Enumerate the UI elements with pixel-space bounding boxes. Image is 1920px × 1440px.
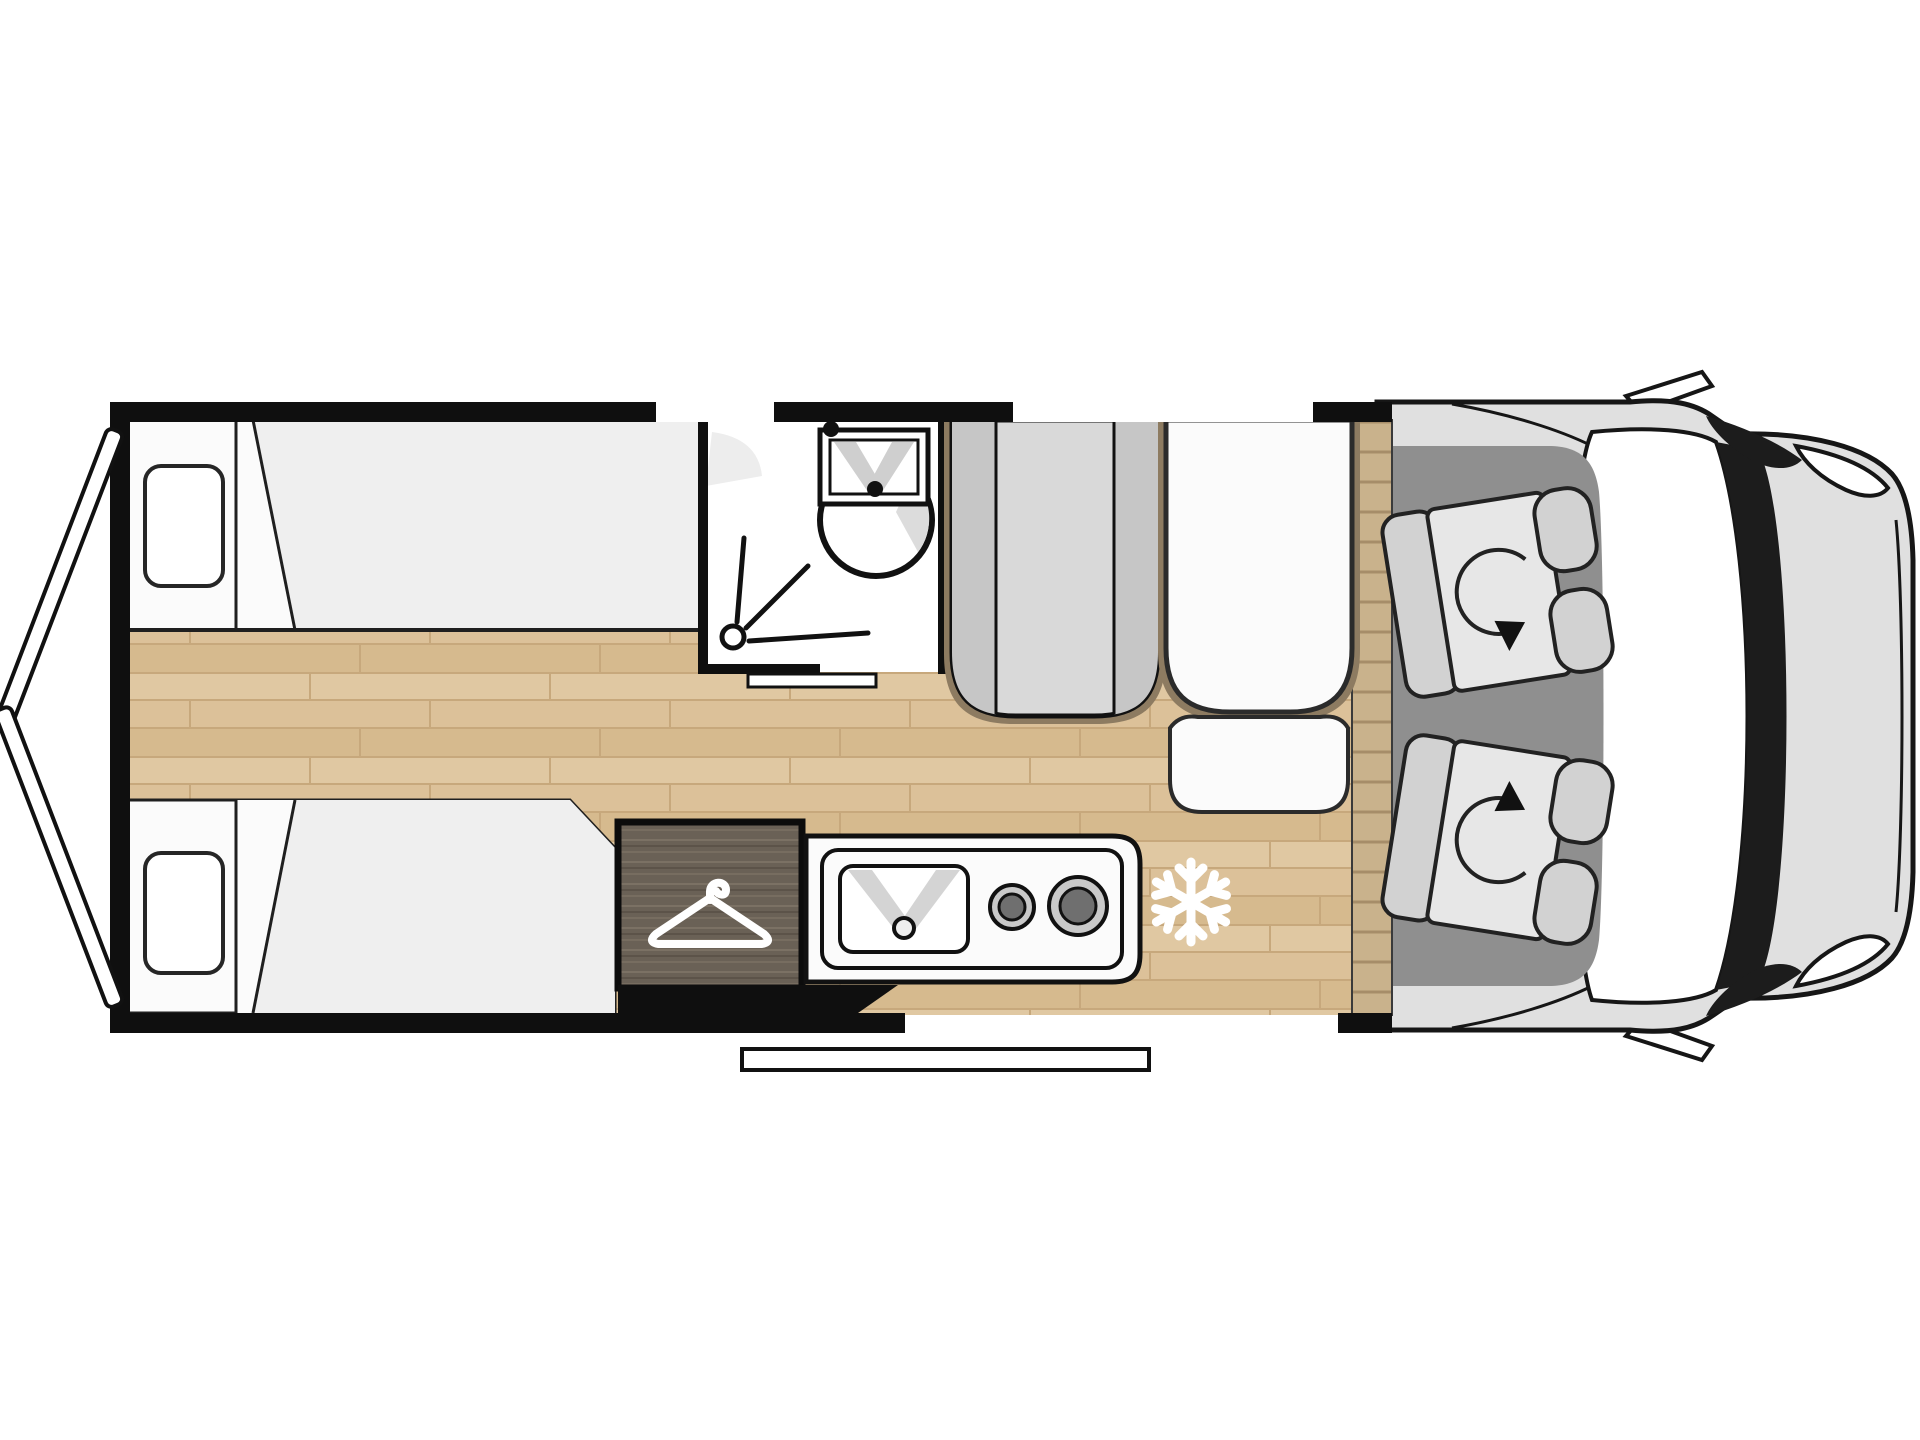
kitchen-sink-icon — [840, 866, 968, 952]
burner-small-icon — [990, 885, 1034, 929]
cab-seat-bottom — [1380, 733, 1616, 948]
wall-left — [110, 402, 130, 1033]
tall-cabinet — [952, 420, 1158, 716]
mattress — [236, 800, 615, 1013]
pillow — [145, 466, 223, 586]
cabinet-side-left — [952, 420, 996, 716]
wall-bottom-right — [1338, 1013, 1392, 1033]
pillow — [145, 853, 223, 973]
cabinet-side-right — [1114, 420, 1158, 716]
burner-large-icon — [1049, 877, 1107, 935]
dinette-bench — [1166, 420, 1352, 712]
wall-bottom-mid — [618, 985, 898, 1013]
kitchen-block — [806, 836, 1140, 982]
bed-rear-bottom — [128, 800, 615, 1013]
window-opening-1 — [656, 402, 774, 422]
cab-seat-top — [1380, 485, 1616, 700]
sink-drain — [894, 918, 914, 938]
faucet-icon — [823, 421, 839, 437]
bathroom-wall-left — [698, 420, 708, 674]
bathroom — [698, 420, 948, 687]
dinette-table — [1170, 716, 1348, 812]
entry-step — [742, 1049, 1149, 1070]
basin-drain — [867, 481, 883, 497]
bathroom-sliding-door — [748, 674, 876, 687]
floorplan-canvas — [0, 0, 1920, 1440]
campervan-floorplan — [0, 0, 1920, 1440]
mattress — [236, 420, 700, 630]
wall-bottom-left — [110, 1013, 618, 1033]
wardrobe-cabinet — [618, 822, 802, 988]
wall-bottom-mid2 — [618, 1013, 905, 1033]
wardrobe — [618, 822, 802, 988]
window-opening-2 — [1013, 402, 1313, 422]
bed-rear-top — [128, 420, 700, 630]
